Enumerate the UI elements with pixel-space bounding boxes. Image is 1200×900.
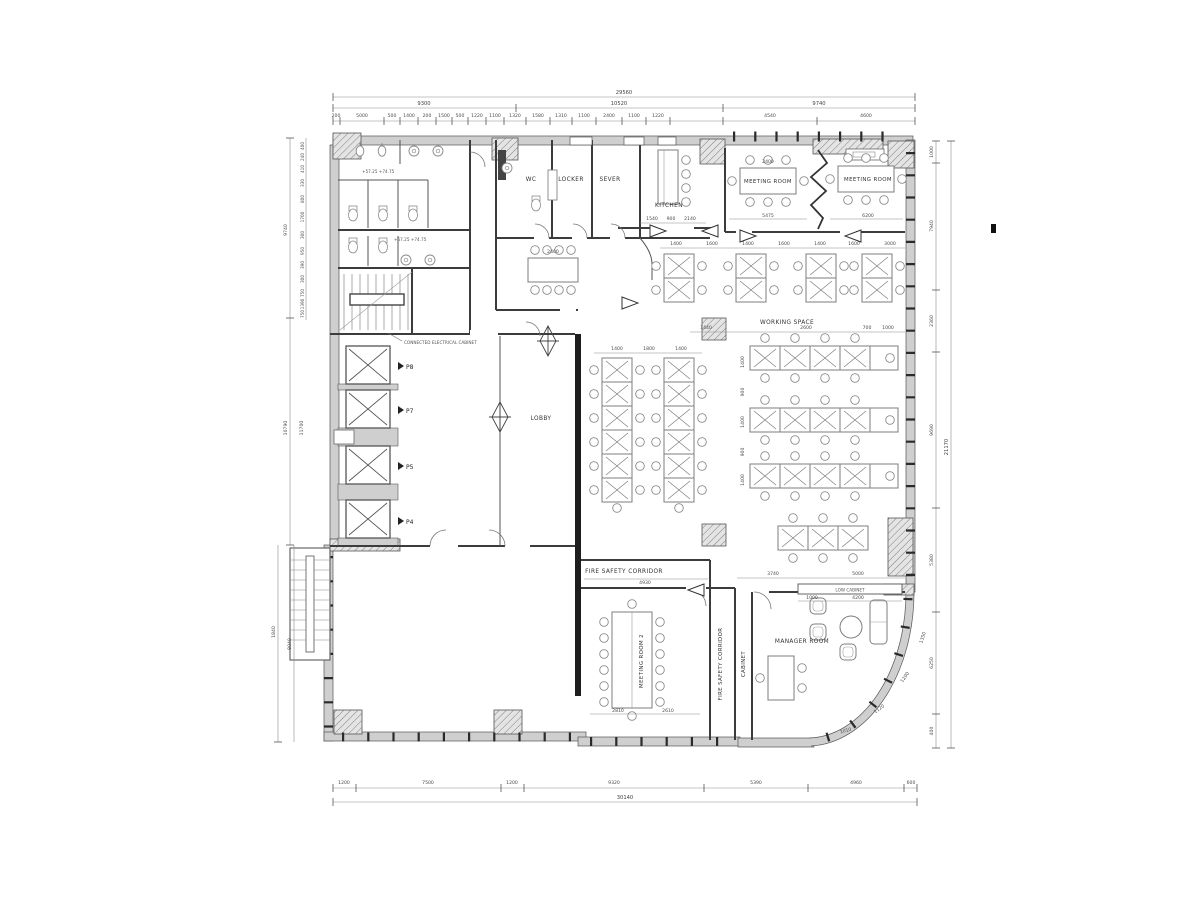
label-fire-safety-corridor-v: FIRE SAFETY CORRIDOR [718, 628, 724, 701]
svg-text:5390: 5390 [750, 780, 762, 786]
svg-text:300: 300 [300, 231, 305, 239]
svg-text:300: 300 [300, 275, 305, 283]
sink-icon [409, 146, 419, 156]
svg-text:10520: 10520 [611, 101, 628, 107]
dimensions-bottom: 1200 7500 1200 9320 5390 4960 600 30140 [333, 780, 917, 806]
stairs-external [290, 548, 330, 660]
svg-text:5380: 5380 [929, 554, 935, 566]
svg-text:1400: 1400 [670, 241, 682, 247]
svg-text:1440: 1440 [700, 325, 712, 331]
label-electrical-cabinet: CONNECTED ELECTRICAL CABINET [404, 340, 477, 345]
svg-text:500: 500 [456, 113, 465, 119]
svg-text:1600: 1600 [706, 241, 718, 247]
svg-text:9300: 9300 [417, 101, 430, 107]
desk-cluster [652, 254, 707, 302]
label-meeting-room-a: MEETING ROOM [744, 179, 792, 185]
svg-text:800: 800 [300, 195, 305, 203]
svg-text:1100: 1100 [628, 113, 640, 119]
stairs-internal [340, 272, 412, 330]
toilet-icon [379, 238, 388, 253]
svg-text:1400: 1400 [675, 346, 687, 352]
toilet-fixtures [349, 143, 558, 265]
svg-text:11700: 11700 [299, 421, 305, 436]
toilet-icon [379, 206, 388, 221]
elevation-note: +57.25 +74.75 [362, 169, 395, 174]
svg-text:1400: 1400 [740, 356, 746, 368]
svg-text:750: 750 [300, 289, 305, 297]
elevator-label-p7: P7 [406, 408, 414, 415]
svg-text:9690: 9690 [929, 424, 935, 436]
armchair-icon [840, 644, 856, 660]
svg-text:1600: 1600 [778, 241, 790, 247]
svg-text:7500: 7500 [422, 780, 434, 786]
label-meeting-room-2: MEETING ROOM 2 [639, 634, 645, 688]
svg-text:1400: 1400 [740, 416, 746, 428]
svg-text:5000: 5000 [852, 571, 864, 577]
svg-text:1840: 1840 [271, 626, 277, 638]
label-locker: LOCKER [558, 177, 584, 183]
svg-text:750: 750 [300, 310, 305, 318]
svg-text:6250: 6250 [929, 657, 935, 669]
svg-text:2810: 2810 [612, 708, 624, 714]
meeting-room-2-table [600, 600, 665, 721]
sink-icon [502, 163, 512, 173]
svg-text:1540: 1540 [646, 216, 658, 222]
svg-text:1000: 1000 [806, 595, 818, 601]
svg-text:1200: 1200 [338, 780, 350, 786]
desk-cluster [794, 254, 849, 302]
svg-text:900: 900 [740, 448, 746, 457]
folding-partition [811, 150, 827, 229]
svg-text:9320: 9320 [608, 780, 620, 786]
desk-column [652, 358, 707, 512]
label-fire-safety-corridor-h: FIRE SAFETY CORRIDOR [585, 569, 663, 575]
svg-text:2140: 2140 [684, 216, 696, 222]
toilet-icon [409, 206, 418, 221]
svg-text:1580: 1580 [532, 113, 544, 119]
sink-icon [425, 255, 435, 265]
armchair-icon [810, 624, 826, 640]
svg-text:900: 900 [740, 388, 746, 397]
svg-text:1200: 1200 [899, 671, 911, 684]
label-kitchen: KITCHEN [655, 203, 683, 209]
desk-column [590, 358, 645, 512]
desk-row [778, 514, 868, 563]
toilet-icon [532, 196, 541, 211]
elevator-shaft [346, 346, 390, 384]
elevator-label-p5: P5 [406, 464, 414, 471]
elevator-label-p8: P8 [406, 364, 414, 371]
svg-text:1700: 1700 [300, 211, 305, 222]
label-lobby: LOBBY [531, 416, 552, 422]
dimensions-top: 29560 9300 10520 9740 200 5000 500 1400 … [332, 90, 915, 125]
elevator-shaft [346, 390, 390, 428]
svg-text:9740: 9740 [283, 224, 289, 236]
label-low-cabinet: LOW CABINET [835, 588, 865, 593]
svg-text:1800: 1800 [643, 346, 655, 352]
svg-text:1400: 1400 [742, 241, 754, 247]
sink-icon [401, 255, 411, 265]
svg-text:1390: 1390 [300, 298, 305, 309]
label-cabinet: CABINET [741, 651, 747, 678]
desk-cluster [850, 254, 905, 302]
desk-cluster [724, 254, 779, 302]
floor-plan-canvas: P8 P7 P5 P4 WC LOCKER SEVER KITCHEN MEET… [0, 0, 1200, 900]
lobby-diamond-icon [489, 402, 511, 432]
svg-text:3740: 3740 [767, 571, 779, 577]
svg-text:950: 950 [300, 247, 305, 255]
svg-text:6200: 6200 [862, 213, 874, 219]
svg-text:10790: 10790 [283, 421, 289, 436]
svg-text:2610: 2610 [662, 708, 674, 714]
section-marker [991, 224, 996, 233]
svg-text:330: 330 [300, 179, 305, 187]
manager-desk [768, 656, 794, 700]
svg-text:5000: 5000 [356, 113, 368, 119]
svg-text:1400: 1400 [740, 474, 746, 486]
svg-text:1500: 1500 [438, 113, 450, 119]
elevator-label-p4: P4 [406, 519, 414, 526]
svg-text:400: 400 [929, 727, 935, 736]
svg-text:1310: 1310 [555, 113, 567, 119]
svg-text:1220: 1220 [652, 113, 664, 119]
label-manager-room: MANAGER ROOM [775, 639, 829, 645]
svg-text:700: 700 [863, 325, 872, 331]
svg-text:410: 410 [300, 165, 305, 173]
svg-text:4540: 4540 [764, 113, 776, 119]
svg-text:1320: 1320 [509, 113, 521, 119]
svg-text:1000: 1000 [882, 325, 894, 331]
svg-text:4930: 4930 [639, 580, 651, 586]
svg-text:4960: 4960 [850, 780, 862, 786]
svg-text:1100: 1100 [578, 113, 590, 119]
svg-text:200: 200 [423, 113, 432, 119]
lobby-diamond-icon [537, 326, 559, 356]
svg-text:240: 240 [300, 153, 305, 161]
elevator-shaft [346, 446, 390, 484]
working-space-desks [590, 254, 905, 562]
elevation-note: +57.25 +74.75 [394, 237, 427, 242]
dim-top-total: 29560 [616, 90, 633, 96]
desk-row [750, 334, 898, 383]
desk-row [750, 452, 898, 501]
svg-text:8040: 8040 [287, 638, 293, 650]
svg-text:2400: 2400 [762, 159, 774, 165]
svg-text:1600: 1600 [848, 241, 860, 247]
svg-text:1400: 1400 [611, 346, 623, 352]
kitchen-furniture [658, 150, 690, 206]
svg-text:1400: 1400 [403, 113, 415, 119]
svg-text:2400: 2400 [547, 249, 559, 255]
svg-text:9740: 9740 [812, 101, 825, 107]
svg-text:1000: 1000 [929, 146, 935, 158]
desk-row [750, 396, 898, 445]
svg-text:2360: 2360 [929, 315, 935, 327]
label-wc: WC [526, 177, 537, 183]
svg-text:390: 390 [300, 261, 305, 269]
lobby-main-wall [575, 334, 581, 696]
svg-text:1200: 1200 [506, 780, 518, 786]
svg-text:400: 400 [300, 142, 305, 150]
svg-text:1400: 1400 [814, 241, 826, 247]
label-sever: SEVER [600, 177, 621, 183]
elevator-shaft [346, 500, 390, 538]
svg-text:7940: 7940 [929, 220, 935, 232]
sink-icon [433, 146, 443, 156]
svg-text:600: 600 [907, 780, 916, 786]
dim-right-total: 21170 [944, 439, 950, 456]
svg-text:200: 200 [332, 113, 341, 119]
label-meeting-room-b: MEETING ROOM [844, 177, 892, 183]
svg-text:1350: 1350 [918, 631, 927, 644]
svg-text:2400: 2400 [603, 113, 615, 119]
svg-text:3000: 3000 [884, 241, 896, 247]
floor-plan-drawing: P8 P7 P5 P4 WC LOCKER SEVER KITCHEN MEET… [0, 0, 1200, 900]
svg-text:4600: 4600 [860, 113, 872, 119]
svg-text:4200: 4200 [852, 595, 864, 601]
svg-text:900: 900 [667, 216, 676, 222]
svg-text:1220: 1220 [471, 113, 483, 119]
dim-bottom-total: 30140 [617, 795, 634, 801]
svg-text:500: 500 [388, 113, 397, 119]
dimensions-right: 1000 7940 2360 9690 5380 6250 400 21170 [929, 141, 955, 748]
svg-text:5475: 5475 [762, 213, 774, 219]
toilet-icon [349, 238, 358, 253]
toilet-icon [349, 206, 358, 221]
coffee-table [840, 616, 862, 638]
svg-text:1100: 1100 [489, 113, 501, 119]
svg-text:2600: 2600 [800, 325, 812, 331]
